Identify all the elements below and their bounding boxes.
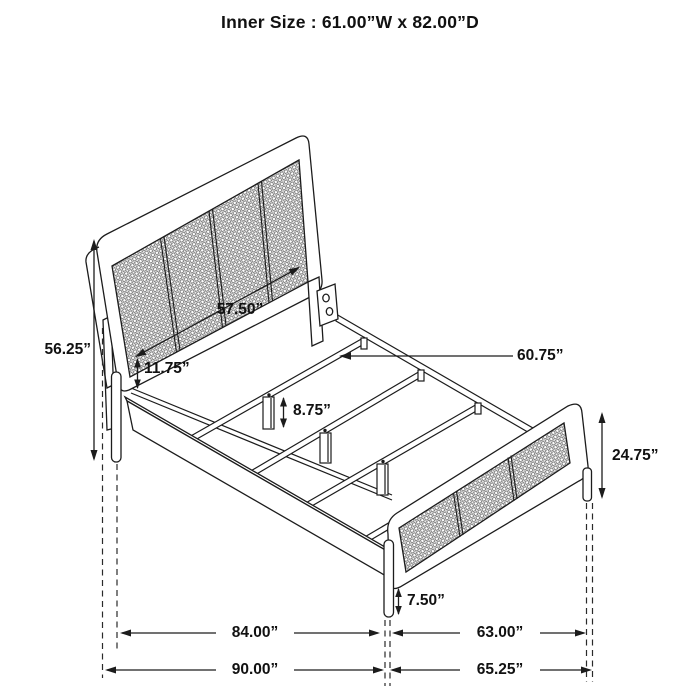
rail-front-face <box>127 401 393 580</box>
center-leg-3 <box>377 464 388 495</box>
center-leg-2 <box>320 433 331 463</box>
page-title: Inner Size : 61.00”W x 82.00”D <box>0 12 700 33</box>
footboard <box>384 404 592 617</box>
slat-bracket-tab <box>475 403 481 414</box>
dim-footboard-height: 24.75” <box>612 447 659 465</box>
left-side-rail-board <box>125 397 393 580</box>
slat-1 <box>189 338 364 444</box>
bed-dimension-diagram: Inner Size : 61.00”W x 82.00”D 56.25” 57… <box>0 0 700 700</box>
dim-headboard-height: 56.25” <box>21 341 91 359</box>
slat-screw-dot <box>381 460 384 463</box>
side-rail-bracket <box>317 284 338 326</box>
dim-overall-width: 65.25” <box>460 661 540 679</box>
dim-headboard-width: 57.50” <box>197 301 283 319</box>
footboard-right-leg <box>583 468 592 501</box>
bed-line-drawing <box>0 0 700 700</box>
slat-screw-dot <box>267 393 270 396</box>
dim-rail-offset: 11.75” <box>144 360 190 378</box>
headboard-front-left-leg <box>112 372 122 462</box>
dim-center-leg-height: 8.75” <box>293 402 331 420</box>
slat-bracket-tab <box>361 338 367 349</box>
slat-2 <box>249 371 421 479</box>
footboard-left-leg <box>384 540 394 617</box>
dim-slat-length: 60.75” <box>517 347 564 365</box>
dim-footboard-span: 63.00” <box>460 624 540 642</box>
dim-overall-length: 90.00” <box>216 661 294 679</box>
slat-bracket-tab <box>418 370 424 381</box>
dim-side-rail-length: 84.00” <box>216 624 294 642</box>
dim-footboard-leg-height: 7.50” <box>407 592 445 610</box>
center-leg-1 <box>263 397 274 429</box>
slat-screw-dot <box>323 429 326 432</box>
